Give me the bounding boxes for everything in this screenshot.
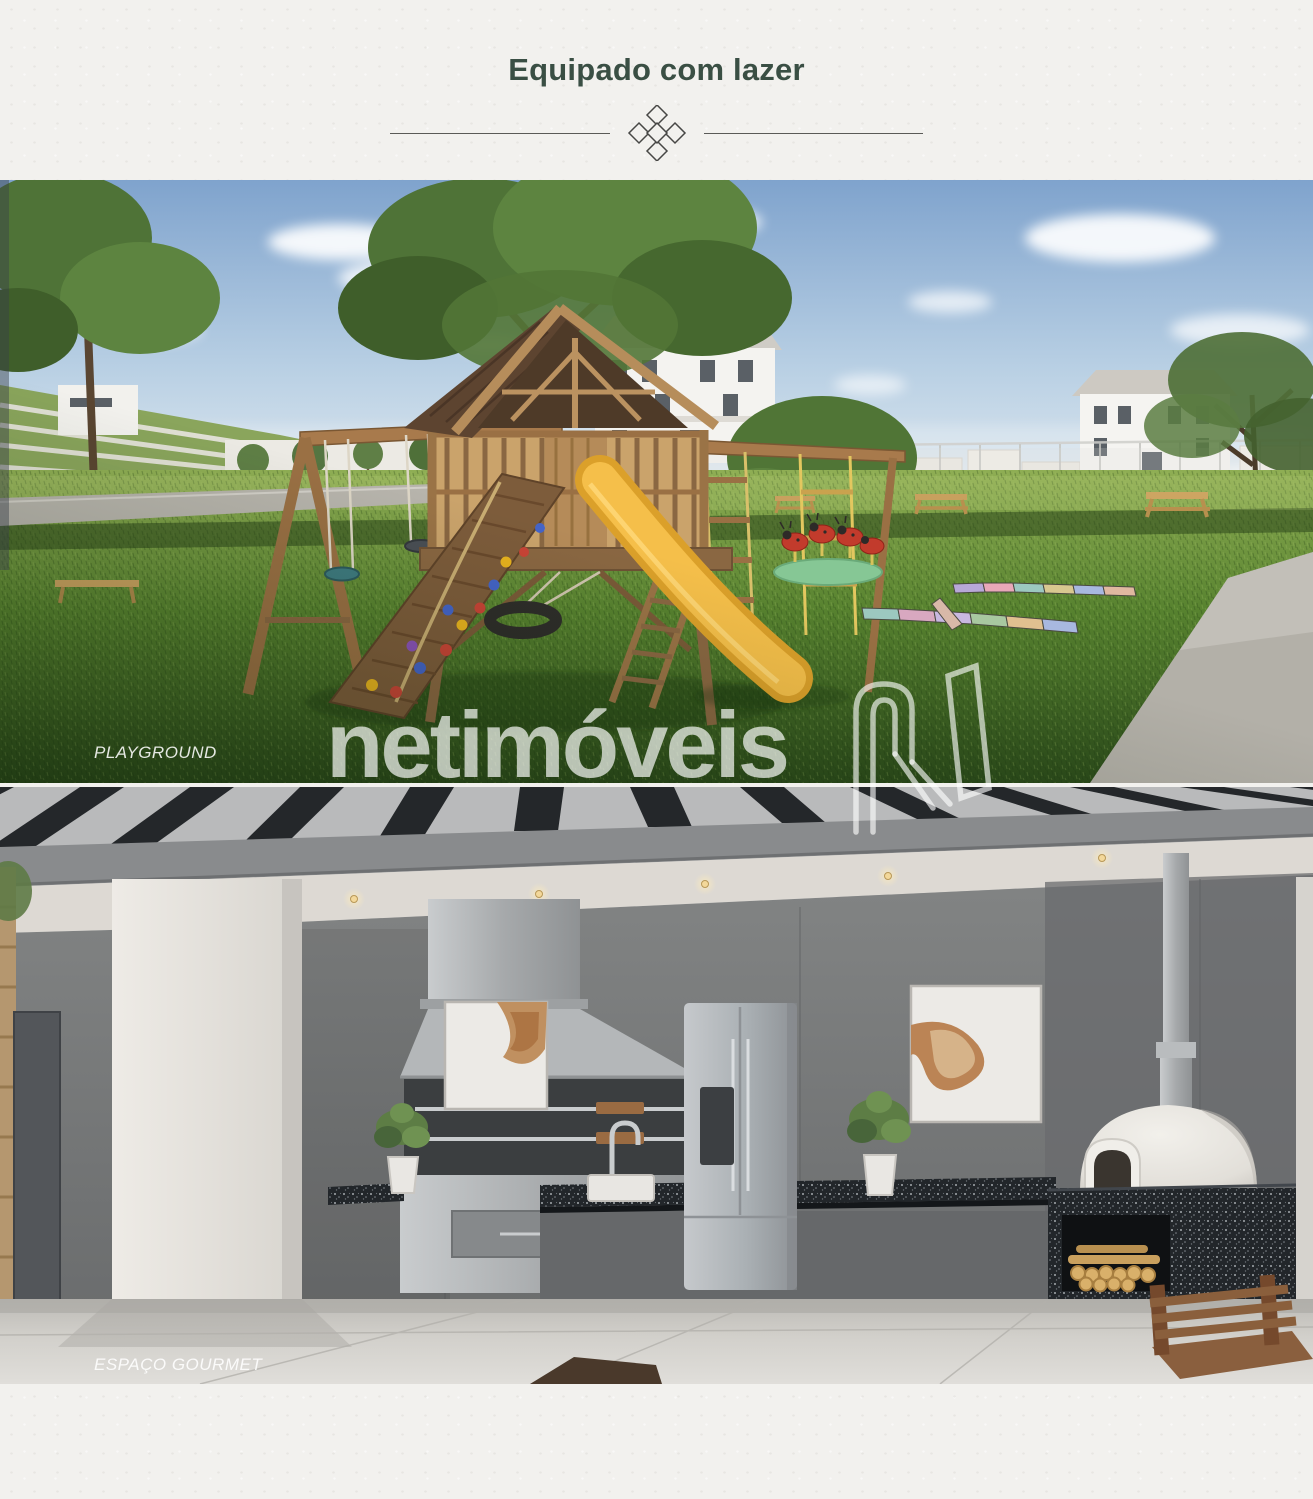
side-door <box>14 1012 60 1344</box>
fridge <box>684 1003 797 1290</box>
diamond-ornament-icon <box>610 105 704 161</box>
gourmet-photo: ESPAÇO GOURMET <box>0 787 1313 1384</box>
artwork-left <box>445 1002 547 1109</box>
listing-page-section: Equipado com lazer <box>0 0 1313 1499</box>
right-wall-strip <box>1296 877 1313 1307</box>
playground-photo: PLAYGROUND <box>0 180 1313 783</box>
oven-base <box>1048 1185 1296 1300</box>
playground-render-illustration <box>0 180 1313 783</box>
divider-line-left <box>390 133 610 134</box>
gourmet-render-illustration <box>0 787 1313 1384</box>
playground-caption: PLAYGROUND <box>94 743 217 763</box>
artwork-right <box>911 986 1041 1122</box>
section-divider <box>390 105 923 161</box>
page-title: Equipado com lazer <box>0 52 1313 88</box>
gourmet-caption: ESPAÇO GOURMET <box>94 1355 262 1375</box>
divider-line-right <box>704 133 924 134</box>
pillar <box>112 879 302 1349</box>
vignette <box>0 180 1313 783</box>
